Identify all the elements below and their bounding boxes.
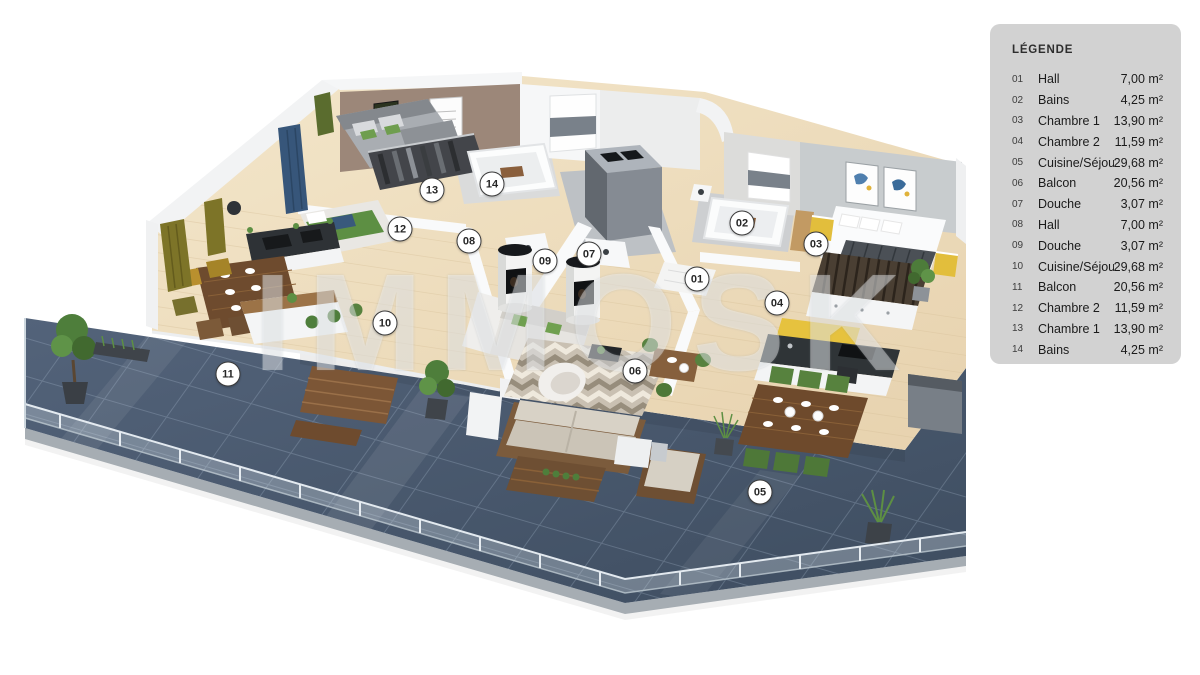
legend-room-number: 01 <box>1012 74 1038 85</box>
legend-room-number: 03 <box>1012 115 1038 126</box>
legend-row: 06Balcon20,56 m² <box>1012 173 1163 194</box>
floorplan-screenshot: IMMOSK 0102030405060708091011121314 LÉGE… <box>0 0 1200 675</box>
nightstand-yellow-left <box>809 216 834 241</box>
legend-row: 14Bains4,25 m² <box>1012 339 1163 360</box>
legend-room-name: Chambre 2 <box>1038 135 1115 149</box>
tub-chair-green <box>642 338 658 352</box>
legend-room-number: 07 <box>1012 199 1038 210</box>
legend-room-area: 13,90 m² <box>1114 322 1163 336</box>
legend-row: 05Cuisine/Séjour29,68 m² <box>1012 152 1163 173</box>
legend-room-number: 06 <box>1012 178 1038 189</box>
legend-row: 13Chambre 113,90 m² <box>1012 319 1163 340</box>
legend-room-number: 04 <box>1012 136 1038 147</box>
legend-room-area: 29,68 m² <box>1114 156 1163 170</box>
legend-room-name: Hall <box>1038 218 1121 232</box>
legend-room-name: Bains <box>1038 343 1121 357</box>
legend-room-name: Douche <box>1038 197 1121 211</box>
legend-room-name: Hall <box>1038 72 1121 86</box>
legend-row: 09Douche3,07 m² <box>1012 235 1163 256</box>
legend-room-area: 11,59 m² <box>1115 301 1163 315</box>
legend-room-name: Chambre 1 <box>1038 114 1114 128</box>
legend-title: LÉGENDE <box>1012 44 1163 56</box>
legend-row: 08Hall7,00 m² <box>1012 215 1163 236</box>
legend-row: 04Chambre 211,59 m² <box>1012 131 1163 152</box>
legend-room-number: 12 <box>1012 303 1038 314</box>
legend-room-name: Cuisine/Séjour <box>1038 260 1114 274</box>
legend-room-number: 11 <box>1012 282 1038 293</box>
legend-room-name: Cuisine/Séjour <box>1038 156 1114 170</box>
legend-row: 03Chambre 113,90 m² <box>1012 111 1163 132</box>
legend-room-number: 02 <box>1012 95 1038 106</box>
legend-room-name: Chambre 2 <box>1038 301 1115 315</box>
bistro-table <box>649 348 700 382</box>
legend-room-name: Balcon <box>1038 280 1114 294</box>
legend-room-number: 14 <box>1012 344 1038 355</box>
legend-panel: LÉGENDE 01Hall7,00 m² 02Bains4,25 m² 03C… <box>990 24 1181 364</box>
legend-room-number: 08 <box>1012 219 1038 230</box>
legend-room-number: 05 <box>1012 157 1038 168</box>
legend-row: 10Cuisine/Séjour29,68 m² <box>1012 256 1163 277</box>
legend-row: 12Chambre 211,59 m² <box>1012 298 1163 319</box>
legend-room-area: 29,68 m² <box>1114 260 1163 274</box>
legend-room-area: 7,00 m² <box>1121 218 1163 232</box>
bar-stool-green <box>306 316 319 329</box>
legend-room-area: 20,56 m² <box>1114 280 1163 294</box>
legend-room-name: Bains <box>1038 93 1121 107</box>
legend-room-area: 4,25 m² <box>1121 343 1163 357</box>
nightstand-yellow-right <box>933 252 958 277</box>
wood-stove-1 <box>498 244 532 313</box>
legend-row: 11Balcon20,56 m² <box>1012 277 1163 298</box>
legend-room-number: 10 <box>1012 261 1038 272</box>
legend-room-area: 20,56 m² <box>1114 176 1163 190</box>
legend-room-name: Balcon <box>1038 176 1114 190</box>
legend-room-number: 13 <box>1012 323 1038 334</box>
legend-room-number: 09 <box>1012 240 1038 251</box>
legend-room-name: Chambre 1 <box>1038 322 1114 336</box>
bird-art-1 <box>846 162 878 206</box>
legend-row: 07Douche3,07 m² <box>1012 194 1163 215</box>
legend-room-name: Douche <box>1038 239 1121 253</box>
legend-room-area: 4,25 m² <box>1121 93 1163 107</box>
legend-room-area: 13,90 m² <box>1114 114 1163 128</box>
legend-row: 02Bains4,25 m² <box>1012 90 1163 111</box>
legend-room-area: 3,07 m² <box>1121 197 1163 211</box>
wood-stove-2 <box>566 256 600 325</box>
legend-row: 01Hall7,00 m² <box>1012 69 1163 90</box>
legend-room-area: 3,07 m² <box>1121 239 1163 253</box>
legend-room-area: 11,59 m² <box>1115 135 1163 149</box>
legend-room-area: 7,00 m² <box>1121 72 1163 86</box>
